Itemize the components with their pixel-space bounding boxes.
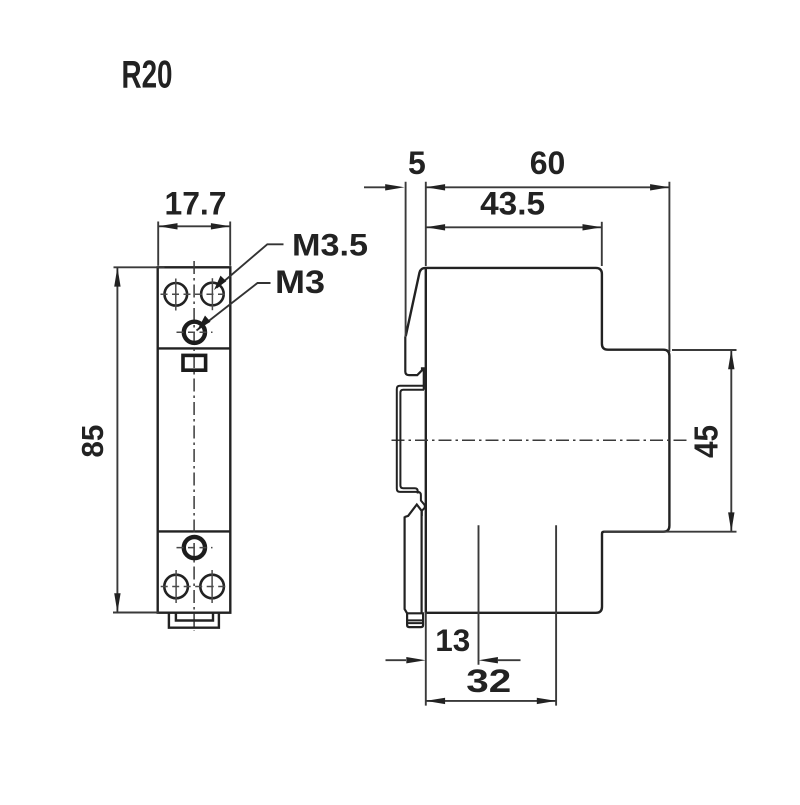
svg-text:32: 32 [466,663,511,699]
svg-text:17.7: 17.7 [165,185,227,221]
svg-text:45: 45 [688,425,725,458]
svg-text:R20: R20 [122,54,173,97]
svg-text:43.5: 43.5 [480,186,545,222]
svg-text:85: 85 [76,425,110,458]
svg-text:M3.5: M3.5 [292,227,368,263]
svg-text:60: 60 [530,145,566,181]
svg-text:5: 5 [408,145,426,181]
svg-text:13: 13 [435,622,470,658]
svg-text:M3: M3 [275,264,325,300]
